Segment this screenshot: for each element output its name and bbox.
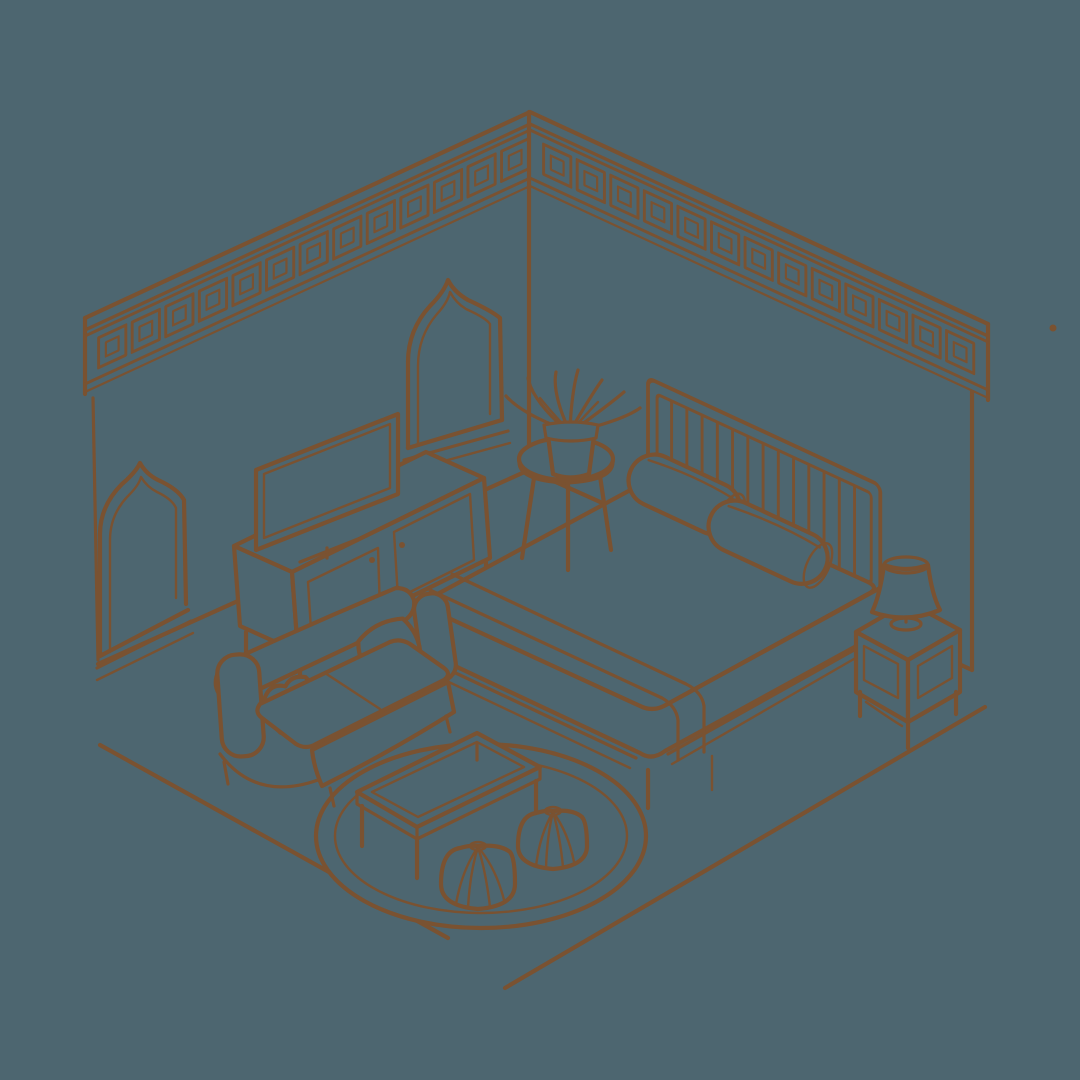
frieze-left-wall bbox=[85, 130, 530, 392]
arched-window-near-corner bbox=[404, 280, 510, 472]
pouf-back bbox=[518, 807, 587, 869]
door-handle bbox=[399, 542, 405, 548]
arched-window-far-left bbox=[97, 463, 193, 680]
window-sill bbox=[408, 420, 502, 448]
illustration-canvas: Hand-drawn isometric bedroom illustratio… bbox=[0, 0, 1080, 1080]
left-wall-edge bbox=[93, 398, 98, 660]
door-handle bbox=[369, 557, 375, 563]
frieze-right-wall bbox=[530, 130, 987, 398]
ink-speck bbox=[1050, 325, 1057, 332]
sofa-skirt bbox=[220, 754, 318, 787]
plant-pot-rim bbox=[544, 422, 598, 441]
nightstand bbox=[856, 602, 960, 748]
ceiling-edge bbox=[85, 112, 988, 324]
bedroom-illustration: Hand-drawn isometric bedroom illustratio… bbox=[0, 0, 1080, 1080]
pouf-front bbox=[441, 842, 515, 909]
sofa-foot bbox=[224, 762, 228, 784]
window-sill bbox=[100, 610, 188, 656]
sofa-foot bbox=[446, 716, 450, 732]
